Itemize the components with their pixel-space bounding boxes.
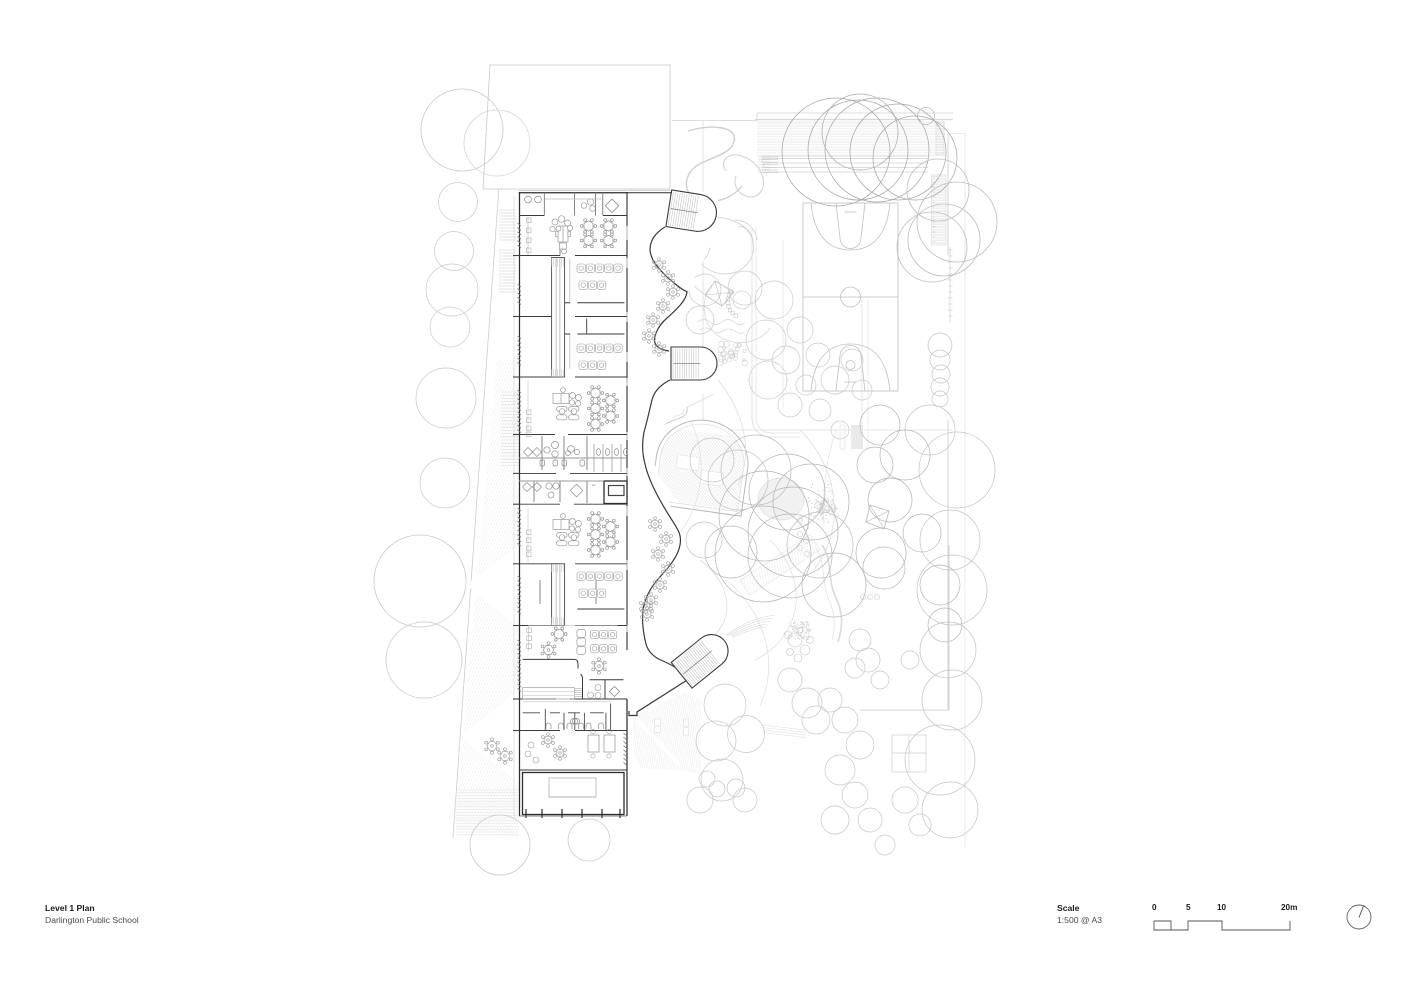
svg-text:1:500 @ A3: 1:500 @ A3 — [1057, 915, 1102, 925]
svg-text:20m: 20m — [1281, 903, 1297, 912]
svg-text:0: 0 — [1152, 903, 1157, 912]
svg-text:10: 10 — [1217, 903, 1227, 912]
svg-text:Level 1 Plan: Level 1 Plan — [45, 903, 95, 913]
svg-text:5: 5 — [1186, 903, 1191, 912]
svg-text:Darlington Public School: Darlington Public School — [45, 915, 139, 925]
svg-text:Scale: Scale — [1057, 903, 1080, 913]
